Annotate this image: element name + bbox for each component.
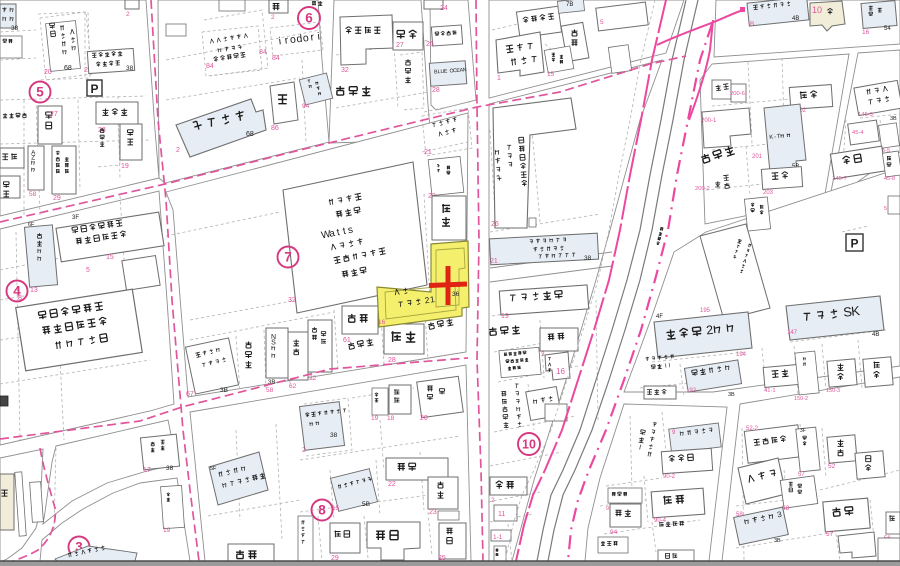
svg-text:3: 3 <box>541 351 545 358</box>
svg-text:P: P <box>90 82 98 96</box>
svg-text:19: 19 <box>371 415 379 422</box>
svg-text:16: 16 <box>378 319 386 326</box>
svg-text:86: 86 <box>271 125 279 132</box>
svg-text:32: 32 <box>288 297 296 304</box>
svg-text:B: B <box>750 21 754 28</box>
svg-text:20: 20 <box>420 415 428 422</box>
svg-text:16: 16 <box>556 367 565 376</box>
svg-text:20: 20 <box>44 69 52 76</box>
svg-text:38: 38 <box>330 432 338 439</box>
svg-text:2: 2 <box>302 447 306 454</box>
svg-text:16: 16 <box>862 29 870 36</box>
svg-text:10: 10 <box>812 5 822 15</box>
svg-text:200-6: 200-6 <box>730 91 745 97</box>
svg-text:15: 15 <box>106 254 114 261</box>
svg-text:N: N <box>463 67 467 73</box>
svg-text:36: 36 <box>452 291 460 298</box>
svg-text:4B: 4B <box>792 16 799 22</box>
svg-text:2: 2 <box>84 67 88 74</box>
svg-text:41-1: 41-1 <box>764 388 776 394</box>
svg-text:8: 8 <box>318 503 326 518</box>
svg-text:5: 5 <box>86 267 90 274</box>
svg-text:94: 94 <box>302 103 310 110</box>
svg-text:S: S <box>271 340 276 347</box>
svg-text:27: 27 <box>50 111 58 118</box>
svg-text:58: 58 <box>266 387 274 394</box>
svg-text:90-4: 90-4 <box>654 518 667 524</box>
svg-text:4F: 4F <box>656 314 663 320</box>
svg-text:2: 2 <box>126 11 130 18</box>
svg-text:10: 10 <box>522 438 536 452</box>
svg-text:68: 68 <box>246 131 254 138</box>
svg-text:38: 38 <box>166 465 174 472</box>
svg-text:19: 19 <box>163 527 171 534</box>
svg-text:68: 68 <box>64 65 72 72</box>
svg-text:201: 201 <box>752 154 763 160</box>
svg-text:84: 84 <box>272 55 280 62</box>
svg-text:4B: 4B <box>872 332 879 338</box>
svg-text:195: 195 <box>700 308 711 314</box>
svg-text:94: 94 <box>610 529 618 536</box>
svg-text:8: 8 <box>18 295 22 302</box>
svg-text:52: 52 <box>828 463 836 470</box>
svg-text:13: 13 <box>30 287 38 294</box>
svg-text:203: 203 <box>763 190 774 196</box>
svg-text:3B: 3B <box>890 116 897 122</box>
svg-text:19: 19 <box>121 163 129 170</box>
svg-text:5: 5 <box>36 85 44 100</box>
svg-text:32: 32 <box>341 67 349 74</box>
svg-text:28: 28 <box>388 357 396 364</box>
svg-text:67: 67 <box>186 391 194 398</box>
svg-text:54: 54 <box>884 26 891 32</box>
svg-text:21: 21 <box>424 149 432 156</box>
svg-text:150-3: 150-3 <box>826 388 840 394</box>
svg-text:3B: 3B <box>728 392 735 398</box>
svg-text:147: 147 <box>787 330 798 336</box>
svg-text:15: 15 <box>547 71 555 78</box>
svg-text:3F: 3F <box>72 215 79 221</box>
svg-text:194: 194 <box>736 352 747 358</box>
svg-text:2: 2 <box>176 147 180 154</box>
svg-text:27: 27 <box>396 42 404 49</box>
svg-text:5F: 5F <box>210 466 217 472</box>
svg-text:23: 23 <box>429 509 437 516</box>
svg-text:84: 84 <box>206 63 214 70</box>
svg-text:Z: Z <box>31 155 35 162</box>
svg-text:7B: 7B <box>566 2 573 8</box>
svg-text:150-2: 150-2 <box>794 396 808 402</box>
svg-text:24: 24 <box>440 5 448 12</box>
svg-text:1: 1 <box>497 75 501 82</box>
svg-text:19: 19 <box>501 313 509 320</box>
svg-text:58: 58 <box>29 191 37 198</box>
svg-text:38: 38 <box>584 255 592 262</box>
svg-text:5B: 5B <box>362 501 370 508</box>
svg-text:90-2: 90-2 <box>663 474 676 480</box>
svg-text:26: 26 <box>426 41 434 48</box>
svg-text:11: 11 <box>498 511 505 518</box>
svg-text:2: 2 <box>271 14 275 21</box>
svg-text:58: 58 <box>736 512 743 518</box>
svg-text:5: 5 <box>600 19 604 26</box>
svg-text:6F: 6F <box>28 222 35 228</box>
svg-text:200-1: 200-1 <box>701 118 717 124</box>
svg-text:52-2: 52-2 <box>746 426 759 432</box>
svg-text:22: 22 <box>309 375 317 382</box>
svg-text:28: 28 <box>432 87 440 94</box>
svg-text:45-8: 45-8 <box>884 176 895 182</box>
svg-text:145-7: 145-7 <box>832 176 847 182</box>
svg-text:29: 29 <box>53 195 61 202</box>
svg-text:3B: 3B <box>774 538 781 544</box>
svg-text:21: 21 <box>490 258 498 265</box>
svg-text:192: 192 <box>686 388 697 394</box>
svg-text:17: 17 <box>143 467 151 474</box>
svg-text:145-3: 145-3 <box>858 112 873 118</box>
svg-text:P: P <box>850 237 858 251</box>
svg-text:1-1: 1-1 <box>493 534 503 541</box>
svg-text:2: 2 <box>491 497 495 504</box>
svg-text:3F: 3F <box>800 428 806 434</box>
svg-text:7: 7 <box>284 250 292 265</box>
svg-text:38: 38 <box>126 65 134 72</box>
svg-text:57: 57 <box>826 531 834 538</box>
svg-text:38: 38 <box>11 25 19 32</box>
svg-text:200-2: 200-2 <box>695 186 710 192</box>
svg-text:61: 61 <box>343 337 351 344</box>
svg-text:3B: 3B <box>220 387 228 394</box>
svg-text:22: 22 <box>388 481 396 488</box>
svg-text:45-4: 45-4 <box>852 130 864 136</box>
svg-text:5: 5 <box>884 206 887 212</box>
svg-text:62: 62 <box>289 383 297 390</box>
svg-text:26: 26 <box>491 221 499 228</box>
svg-text:18: 18 <box>387 415 395 422</box>
svg-text:84: 84 <box>259 49 267 56</box>
